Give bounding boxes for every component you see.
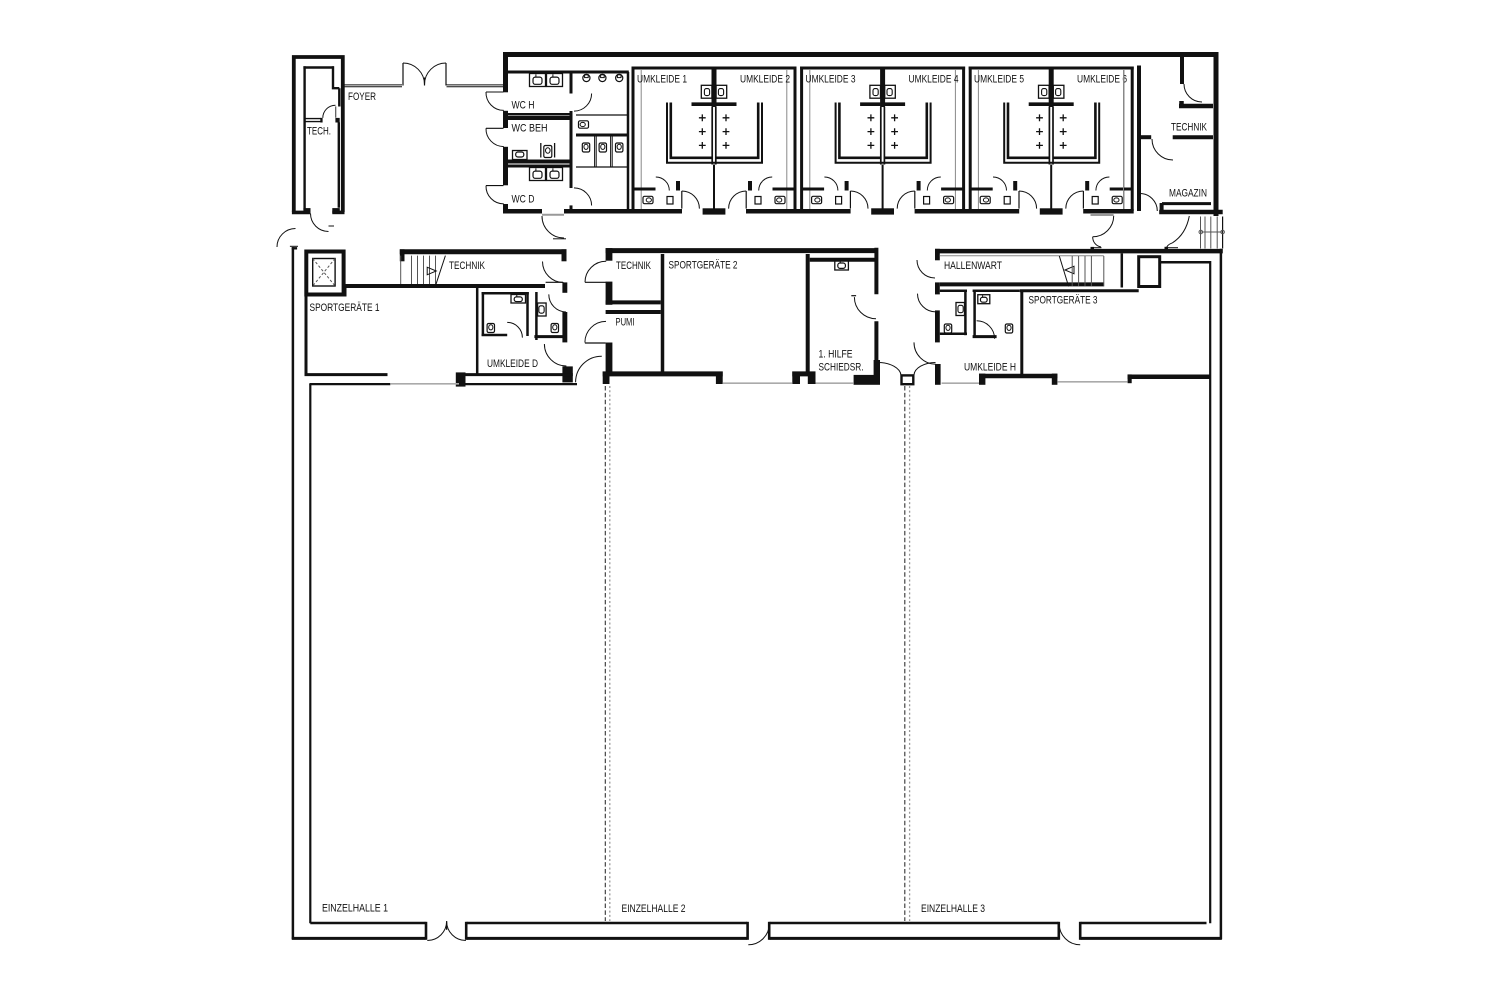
svg-text:TECH.: TECH.	[307, 126, 331, 138]
svg-text:PUMI: PUMI	[616, 317, 635, 329]
svg-text:MAGAZIN: MAGAZIN	[1169, 188, 1207, 200]
svg-text:EINZELHALLE 2: EINZELHALLE 2	[622, 903, 686, 915]
svg-text:TECHNIK: TECHNIK	[616, 260, 651, 272]
svg-text:FOYER: FOYER	[348, 91, 376, 103]
svg-text:UMKLEIDE 6: UMKLEIDE 6	[1077, 74, 1127, 86]
svg-text:SPORTGERÄTE 2: SPORTGERÄTE 2	[669, 260, 738, 272]
svg-text:HALLENWART: HALLENWART	[944, 260, 1002, 272]
svg-text:UMKLEIDE H: UMKLEIDE H	[964, 362, 1016, 374]
svg-text:EINZELHALLE 1: EINZELHALLE 1	[322, 903, 388, 915]
svg-text:SPORTGERÄTE 3: SPORTGERÄTE 3	[1029, 295, 1098, 307]
svg-text:EINZELHALLE 3: EINZELHALLE 3	[921, 903, 985, 915]
svg-text:UMKLEIDE 1: UMKLEIDE 1	[637, 74, 687, 86]
svg-text:1. HILFE: 1. HILFE	[819, 349, 853, 361]
svg-text:UMKLEIDE 3: UMKLEIDE 3	[806, 74, 856, 86]
svg-text:SPORTGERÄTE 1: SPORTGERÄTE 1	[310, 302, 380, 314]
svg-text:WC BEH: WC BEH	[512, 123, 548, 135]
svg-text:UMKLEIDE D: UMKLEIDE D	[487, 358, 538, 370]
svg-text:TECHNIK: TECHNIK	[1171, 122, 1207, 134]
svg-text:WC H: WC H	[512, 100, 535, 112]
svg-text:UMKLEIDE 5: UMKLEIDE 5	[974, 74, 1024, 86]
svg-text:WC D: WC D	[512, 194, 535, 206]
svg-text:UMKLEIDE 2: UMKLEIDE 2	[740, 74, 790, 86]
svg-text:SCHIEDSR.: SCHIEDSR.	[819, 362, 864, 374]
svg-text:UMKLEIDE 4: UMKLEIDE 4	[909, 74, 959, 86]
svg-text:TECHNIK: TECHNIK	[449, 260, 485, 272]
